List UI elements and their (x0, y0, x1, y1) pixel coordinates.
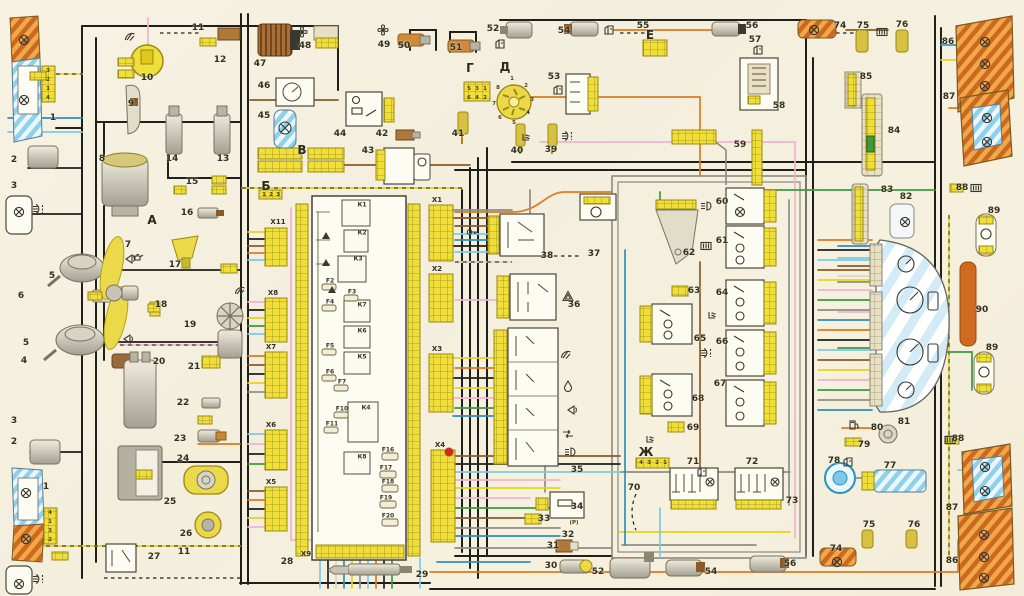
warntri-icon (563, 292, 573, 301)
switch-module-60 (726, 188, 776, 224)
relay-43 (376, 148, 430, 184)
module-11-top (218, 28, 240, 40)
mini-connector (671, 500, 716, 509)
corrector-17 (172, 236, 198, 268)
mini-connector (52, 552, 68, 560)
fuel-sender-78 (825, 463, 855, 493)
diagram-art (0, 0, 1024, 596)
connector-strip-85 (845, 72, 861, 108)
switch-module-65 (640, 304, 692, 344)
switch-module-66 (726, 330, 776, 376)
mini-connector (44, 508, 57, 544)
sensor-22 (202, 398, 220, 408)
horn-10 (131, 45, 163, 77)
sensor-31 (556, 540, 578, 552)
lamp-45 (274, 110, 296, 148)
glovebox-lamp-82 (890, 204, 914, 238)
column-switch-stack-35 (494, 328, 558, 466)
relay-27 (106, 544, 136, 572)
mini-connector (212, 176, 226, 184)
mini-connector (656, 200, 696, 209)
oxygen-sensor-29 (328, 564, 412, 575)
door-lock-actuator-54-bottom (666, 560, 705, 576)
spark-plug-42 (396, 130, 420, 140)
wiper-motor-19 (217, 303, 243, 358)
ignition-switch-38 (488, 214, 544, 256)
sensor-16 (198, 208, 224, 218)
side-repeater-89-top (976, 214, 996, 256)
fan4-icon (378, 25, 388, 35)
switch-module-68 (640, 374, 692, 416)
injector-40 (516, 124, 525, 154)
horn-icon (568, 406, 576, 414)
headlamp-icon (565, 448, 575, 456)
mini-connector (200, 38, 216, 46)
fog-icon (562, 132, 572, 141)
oxygen-sensor-23 (198, 430, 226, 442)
arrows-icon (563, 430, 573, 437)
mini-connector (30, 72, 46, 80)
door-lock-actuator-54-top (564, 22, 598, 36)
mini-connector (174, 186, 186, 194)
mini-connector (259, 190, 282, 199)
switch-module-67 (726, 380, 776, 426)
mini-connector (42, 66, 55, 102)
mini-connector (118, 58, 134, 66)
fog-lamp-bottom (6, 566, 32, 594)
coil-13 (214, 106, 230, 154)
instrument-cluster-81 (870, 240, 949, 412)
sensor-51 (448, 40, 480, 52)
door-lock-actuator-56-bottom (750, 556, 789, 572)
immobilizer-80 (879, 425, 897, 443)
fog-icon (33, 205, 43, 214)
antenna-70 (632, 494, 636, 530)
mini-connector (88, 292, 102, 300)
mini-connector (202, 356, 220, 368)
x4-red-marker (445, 448, 454, 457)
wiring-diagram-canvas: 1234556789101112131415161718192021222324… (0, 0, 1024, 596)
headlamp-icon (701, 202, 711, 210)
door-lock-actuator-52-bottom (610, 552, 654, 578)
sensor-50 (398, 34, 430, 46)
tail-lamp-87-top (960, 90, 1012, 166)
door-icon (496, 40, 504, 48)
plug-76-top (896, 30, 908, 52)
switch-module-64 (726, 280, 776, 326)
mini-connector (316, 38, 338, 48)
bracket-9 (126, 85, 140, 134)
fuse-relay-block (296, 196, 420, 560)
switch-module-61 (726, 226, 776, 268)
connector-strip-84 (862, 94, 882, 176)
plug-76-bottom (906, 530, 917, 548)
grille-icon (971, 185, 981, 192)
light-switch-34 (550, 492, 584, 518)
seatheat-icon (647, 436, 654, 442)
cigarette-lighter-44 (346, 92, 394, 126)
door-icon (605, 26, 613, 34)
door-icon (554, 86, 562, 94)
speed-sensor-30 (560, 560, 592, 573)
wiper-icon (126, 33, 135, 41)
cone-connector-62 (656, 210, 698, 264)
coil-14 (166, 106, 182, 154)
generator-8 (102, 153, 148, 216)
plug-75-top (856, 30, 868, 52)
tail-lamp-87-bottom (962, 444, 1012, 514)
mini-connector (118, 70, 134, 78)
door-icon (754, 46, 762, 54)
connector-strip-83 (852, 184, 868, 244)
injector-41 (458, 112, 468, 144)
mini-connector (136, 470, 152, 479)
door-lock-actuator-56-top (712, 22, 746, 36)
window-switch-71 (670, 468, 718, 500)
gauge-46 (276, 78, 314, 106)
mini-connector (148, 304, 160, 312)
high-mount-stop-90 (960, 262, 976, 346)
plug-75-bottom (862, 530, 873, 548)
washer-pump-bottom (30, 440, 60, 464)
fog-icon (701, 349, 711, 358)
window-switch-72 (735, 468, 783, 500)
mini-connector (636, 458, 669, 468)
fog-icon (33, 575, 43, 584)
coolant-sensor-26 (195, 512, 221, 538)
oilcan-icon (133, 255, 143, 261)
connector-B-strip (258, 148, 344, 172)
washer-pump-top (28, 146, 58, 168)
grille-icon (701, 243, 711, 250)
injector-39 (548, 124, 557, 154)
heater-fan-motor-47 (258, 24, 300, 56)
mini-connector (212, 186, 226, 194)
mini-connector (845, 438, 861, 446)
connector-58 (740, 58, 778, 110)
relay-37 (580, 194, 616, 220)
mini-connector (736, 500, 781, 509)
mini-connector (668, 422, 684, 432)
side-repeater-89-bottom (974, 352, 994, 394)
mini-connector (643, 40, 667, 56)
headlight-front-bottom (12, 468, 44, 562)
mini-connector (525, 514, 541, 524)
distributor-D (497, 85, 531, 119)
droplet-icon (565, 381, 572, 392)
heater-control-53 (566, 74, 598, 114)
mini-connector (950, 184, 963, 192)
mini-connector (464, 82, 490, 101)
license-lamp-74-top (798, 20, 836, 38)
hazard-switch-36 (497, 274, 556, 320)
mini-connector (198, 416, 212, 424)
seatheat-icon (709, 312, 716, 318)
door-lock-actuator-52-top (500, 22, 532, 38)
ignition-module-20 (124, 352, 156, 428)
tail-lamp-86-bottom (958, 508, 1014, 590)
fog-lamp-top (6, 196, 32, 234)
mini-connector (536, 498, 548, 510)
mini-connector (221, 264, 237, 273)
rear-defogger-77 (862, 470, 926, 492)
mini-connector (672, 286, 688, 296)
mini-connector (672, 130, 716, 144)
wiper-icon (562, 351, 571, 359)
fuel-pump-24 (184, 466, 228, 494)
